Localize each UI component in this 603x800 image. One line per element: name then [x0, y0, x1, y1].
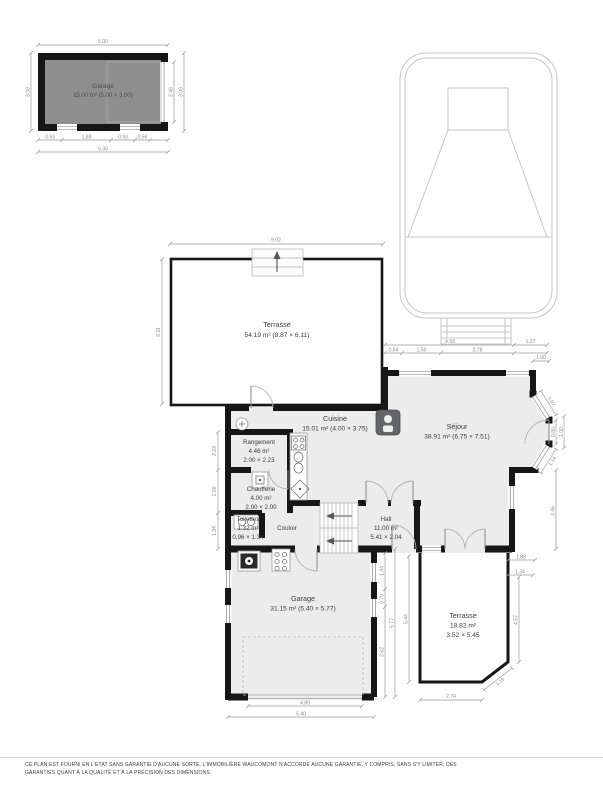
dim-sejour-top-3: 2.79	[473, 348, 483, 354]
terrasse-nw: Terrasse 54.19 m² (8.87 × 6.11)	[171, 249, 382, 405]
room-label-garage: Garage	[291, 594, 315, 603]
dim-garage-right-2: 0.70	[380, 594, 386, 604]
dim-sejour-top-1: 0.64	[389, 348, 399, 354]
dim-sejour-top-total: 4.93	[445, 339, 455, 345]
annex-garage-name: Garage	[92, 83, 114, 90]
room-size-rangement: 2.00 × 2.23	[243, 457, 275, 464]
dim-left-chaufferie: 2.00	[212, 486, 218, 496]
room-size-chaufferie: 2.00 × 2.00	[245, 504, 277, 511]
room-size-terrasse-se: 3.52 × 5.45	[446, 632, 480, 639]
dim-terrasse-se-top-1: 1.88	[516, 555, 526, 561]
room-size-hall: 5.41 × 2.04	[370, 534, 402, 541]
room-area-cuisine: 15.01 m² (4.00 × 3.75)	[302, 426, 367, 433]
pool-outline-outer	[400, 53, 557, 318]
annex-dim-b2: 1.88	[82, 135, 92, 141]
annex-dim-right-outer: 3.00	[179, 87, 185, 97]
dim-sejour-top-2: 1.50	[417, 348, 427, 354]
annex-dim-top: 5.00	[98, 39, 108, 45]
dim-bay-door: 0.80	[551, 427, 557, 437]
floor-plan-page: Garage 15.00 m² (5.00 × 3.00) 5.00 3.00 …	[0, 0, 603, 800]
kitchen-counter	[290, 433, 307, 500]
room-label-toilettes: Toilettes	[237, 516, 260, 523]
dim-left-rangement: 2.23	[212, 446, 218, 456]
floor-plan-svg: Garage 15.00 m² (5.00 × 3.00) 5.00 3.00 …	[0, 0, 603, 800]
pool-slope-lines	[406, 130, 551, 237]
room-area-sejour: 38.91 m² (6.75 × 7.51)	[424, 434, 489, 441]
annex-window-2	[120, 124, 140, 131]
dim-bay-top: 1.00	[536, 355, 546, 361]
dim-garage-right-3: 2.62	[380, 647, 386, 657]
dim-terrasse-se-top-2: 1.34	[515, 570, 525, 576]
room-label-terrasse-nw: Terrasse	[263, 320, 291, 329]
room-label-couloir: Couloir	[277, 525, 297, 532]
room-area-toilettes: 1.32 m²	[238, 525, 259, 532]
pool	[400, 53, 557, 344]
dim-terrasse-se-right: 4.57	[514, 615, 520, 625]
dim-garage-bottom-total: 5.40	[296, 712, 306, 718]
room-label-rangement: Rangement	[243, 439, 275, 446]
room-area-terrasse-se: 18.82 m²	[450, 623, 477, 630]
dim-left-toilettes: 1.34	[212, 526, 218, 536]
dim-terrasse-se-diag: 1.16	[495, 677, 507, 688]
room-label-cuisine: Cuisine	[323, 414, 347, 423]
dim-terrasse-nw-top: 9.02	[271, 238, 281, 244]
annex-dim-right-inner: 2.46	[169, 87, 175, 97]
annex-dim-b4: 0.56	[138, 135, 148, 141]
pool-deep-end	[448, 88, 508, 130]
dim-terrasse-se-bottom: 2.74	[446, 694, 456, 700]
wood-stove-icon	[376, 410, 400, 435]
main-staircase	[320, 503, 358, 553]
dim-garage-right-total: 5.77	[390, 618, 396, 628]
room-area-garage: 31.15 m² (5.40 × 5.77)	[270, 606, 335, 613]
terrasse-se: Terrasse 18.82 m² 3.52 × 5.45	[420, 553, 508, 682]
annex-dim-b3: 0.93	[118, 135, 128, 141]
room-label-terrasse-se: Terrasse	[449, 611, 477, 620]
room-area-hall: 11.00 m²	[374, 525, 398, 532]
dim-terrasse-se-left: 5.44	[404, 614, 410, 624]
dim-bay-diag-bottom: 1.14	[548, 456, 558, 468]
room-area-chaufferie: 4.00 m²	[251, 495, 272, 502]
annex-garage-area: 15.00 m² (5.00 × 3.00)	[73, 93, 133, 99]
main-plan: Terrasse 54.19 m² (8.87 × 6.11) Terrasse…	[156, 238, 566, 720]
dim-bay-low: 1.00	[559, 427, 565, 437]
dim-terrasse-nw-left: 6.11	[156, 327, 162, 337]
disclaimer-text: CE PLAN EST FOURNI EN L'ETAT SANS GARANT…	[25, 762, 485, 778]
annex-dim-left: 3.00	[26, 87, 32, 97]
annex-garage-plan: Garage 15.00 m² (5.00 × 3.00) 5.00 3.00 …	[26, 39, 187, 154]
annex-garage-interior	[45, 60, 161, 124]
annex-dim-total: 5.30	[98, 147, 108, 153]
room-area-terrasse-nw: 54.19 m² (8.87 × 6.11)	[245, 332, 310, 339]
dim-sejour-top-right: 1.27	[526, 339, 536, 345]
dim-garage-right-1: 1.44	[380, 566, 386, 576]
room-area-rangement: 4.46 m²	[249, 448, 270, 455]
dim-garage-bottom-inner: 4.80	[300, 701, 310, 707]
dim-sejour-right: 3.46	[551, 506, 557, 516]
footer-divider	[0, 757, 603, 758]
room-label-sejour: Séjour	[447, 422, 468, 431]
annex-dim-b1: 0.93	[45, 135, 55, 141]
annex-window-1	[57, 124, 77, 131]
room-label-chaufferie: Chaufferie	[247, 486, 276, 493]
room-label-hall: Hall	[381, 516, 392, 523]
room-size-toilettes: 0.96 × 1.34	[232, 534, 264, 541]
